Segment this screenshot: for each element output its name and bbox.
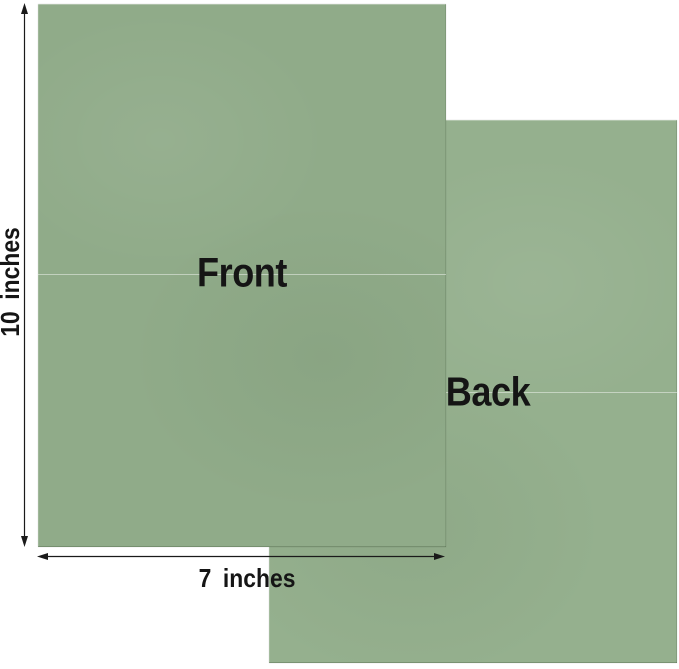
width-dimension-arrow (37, 550, 445, 563)
front-label: Front (197, 253, 287, 294)
back-label: Back (446, 372, 530, 413)
product-diagram: Back Front 10 inches 7 inches (0, 0, 679, 669)
height-dimension-label: 10 inches (0, 227, 23, 337)
front-sheet: Front (38, 4, 446, 547)
width-dimension-label: 7 inches (199, 565, 296, 591)
